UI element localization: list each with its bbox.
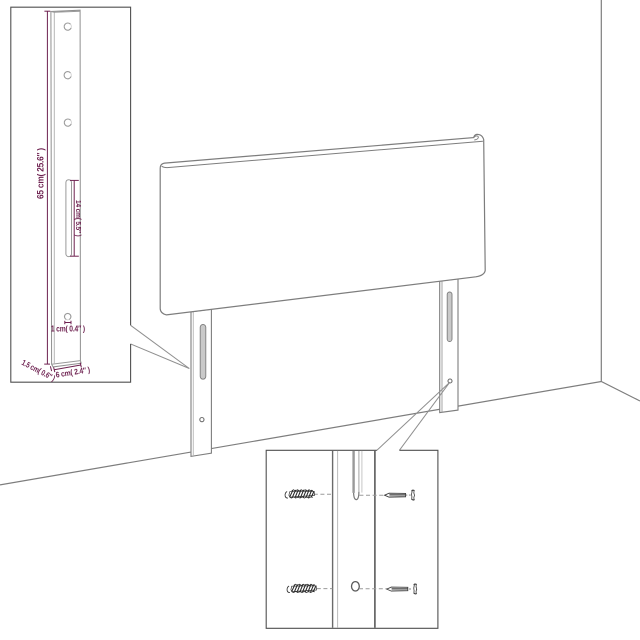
- svg-text:1 cm( 0.4″ ): 1 cm( 0.4″ ): [51, 324, 85, 333]
- svg-text:65 cm( 25.6″ ): 65 cm( 25.6″ ): [35, 148, 45, 199]
- svg-text:14 cm( 5.5″ ): 14 cm( 5.5″ ): [74, 200, 81, 237]
